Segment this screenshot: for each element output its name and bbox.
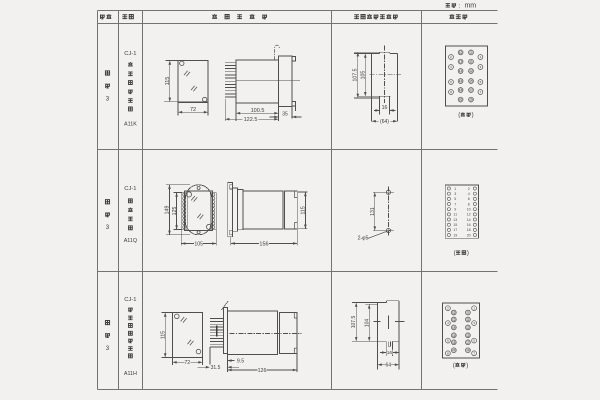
- svg-text:10: 10: [452, 310, 455, 314]
- svg-text:104: 104: [364, 319, 370, 328]
- svg-text:3: 3: [106, 96, 110, 103]
- svg-text:(: (: [458, 113, 460, 119]
- svg-text:16: 16: [387, 350, 393, 356]
- svg-text:4: 4: [468, 192, 470, 196]
- svg-text:(: (: [454, 251, 456, 257]
- svg-text:10: 10: [459, 50, 463, 54]
- svg-text:10: 10: [467, 207, 471, 211]
- svg-text:100.5: 100.5: [251, 108, 265, 114]
- svg-text:A11Q: A11Q: [124, 238, 137, 244]
- svg-text:A11H: A11H: [124, 371, 137, 377]
- svg-text:107.5: 107.5: [353, 68, 359, 81]
- svg-text:115: 115: [160, 331, 166, 339]
- svg-text:(64): (64): [380, 119, 389, 125]
- svg-text:12: 12: [469, 69, 473, 73]
- svg-text:): ): [466, 363, 468, 369]
- svg-text:72: 72: [184, 360, 190, 366]
- svg-text:CJ-1: CJ-1: [124, 51, 136, 57]
- svg-text:14: 14: [467, 218, 471, 222]
- svg-text:20: 20: [467, 233, 471, 237]
- svg-text:13: 13: [459, 60, 463, 64]
- svg-text:20: 20: [459, 98, 463, 102]
- svg-text:(: (: [453, 363, 455, 369]
- svg-text:16: 16: [452, 333, 455, 337]
- svg-text:125: 125: [172, 207, 178, 216]
- svg-text:9: 9: [454, 207, 456, 211]
- svg-text:105: 105: [194, 241, 203, 247]
- svg-text:131: 131: [370, 207, 376, 216]
- svg-text:13: 13: [453, 218, 457, 222]
- svg-text:13: 13: [466, 325, 469, 329]
- svg-text:105: 105: [360, 71, 366, 80]
- svg-text:115: 115: [301, 206, 307, 214]
- svg-text:15: 15: [469, 79, 473, 83]
- svg-text:CJ-1: CJ-1: [124, 297, 136, 303]
- svg-text:9.5: 9.5: [237, 358, 244, 364]
- svg-text:3: 3: [106, 345, 110, 352]
- svg-text:6: 6: [468, 197, 470, 201]
- svg-text:3: 3: [454, 192, 456, 196]
- svg-text:): ): [467, 251, 469, 257]
- svg-text:31.5: 31.5: [211, 365, 221, 371]
- svg-text:19: 19: [466, 348, 469, 352]
- svg-text:12: 12: [467, 213, 471, 217]
- svg-text:12: 12: [452, 317, 455, 321]
- svg-text:122.5: 122.5: [244, 117, 258, 123]
- svg-text:5: 5: [454, 197, 456, 201]
- svg-text:156: 156: [259, 241, 268, 247]
- svg-text:19: 19: [453, 233, 457, 237]
- svg-text:17: 17: [469, 88, 473, 92]
- svg-text:19: 19: [469, 98, 473, 102]
- svg-text:2-φ5: 2-φ5: [358, 235, 369, 241]
- svg-text:15: 15: [453, 223, 457, 227]
- svg-text:18: 18: [452, 340, 455, 344]
- svg-text:17: 17: [466, 340, 469, 344]
- svg-text:): ): [472, 113, 474, 119]
- svg-text:16: 16: [459, 79, 463, 83]
- svg-text:7: 7: [454, 202, 456, 206]
- svg-text:115: 115: [165, 77, 171, 86]
- svg-text:107.5: 107.5: [351, 316, 357, 329]
- svg-text:8: 8: [468, 202, 470, 206]
- svg-text:1: 1: [454, 187, 456, 191]
- svg-text:18: 18: [459, 88, 463, 92]
- svg-text:3: 3: [106, 224, 110, 231]
- svg-text:72: 72: [190, 107, 196, 113]
- svg-text:35: 35: [282, 112, 288, 118]
- svg-text:14: 14: [452, 325, 455, 329]
- svg-text:14: 14: [459, 69, 463, 73]
- svg-text:20: 20: [452, 348, 455, 352]
- svg-text:17: 17: [453, 228, 457, 232]
- svg-text:16: 16: [467, 223, 471, 227]
- svg-text:mm: mm: [464, 2, 476, 9]
- svg-text:149: 149: [165, 206, 171, 215]
- svg-text:16: 16: [382, 105, 388, 111]
- svg-text:64: 64: [386, 362, 392, 368]
- svg-text:18: 18: [467, 228, 471, 232]
- svg-text:15: 15: [466, 333, 469, 337]
- svg-text:11: 11: [453, 213, 457, 217]
- svg-text:11: 11: [470, 60, 473, 64]
- svg-text:2: 2: [468, 187, 470, 191]
- svg-text:CJ-1: CJ-1: [124, 186, 136, 192]
- svg-text::: :: [458, 2, 460, 9]
- svg-text:A11K: A11K: [124, 121, 137, 127]
- svg-text:11: 11: [467, 317, 470, 321]
- svg-text:126: 126: [258, 368, 267, 374]
